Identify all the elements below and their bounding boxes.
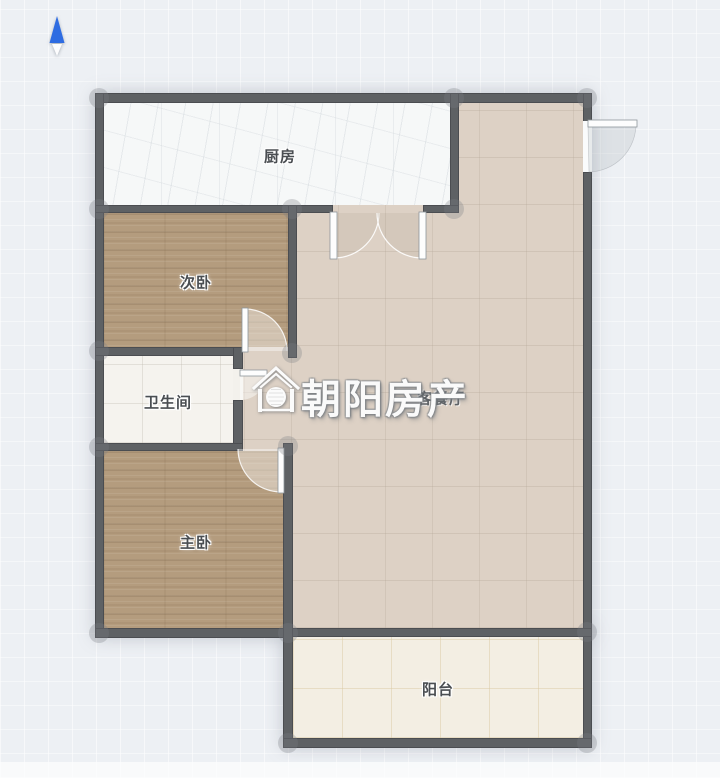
wall-node xyxy=(89,88,109,108)
bathroom-label: 卫生间 xyxy=(144,392,192,413)
wall-node xyxy=(282,343,302,363)
balcony-label: 阳台 xyxy=(422,679,454,700)
kitchen-label: 厨房 xyxy=(264,146,296,167)
secondary-bedroom-door-leaf xyxy=(242,308,248,352)
kitchen-door-swing-arc xyxy=(334,213,379,258)
kitchen-door-leaf xyxy=(419,212,426,259)
wall-node xyxy=(89,623,109,643)
kitchen-door-leaf xyxy=(330,212,337,259)
entry-door-swing-arc xyxy=(588,124,636,172)
brand-watermark-text: 朝阳房产 xyxy=(301,367,469,425)
wall-node xyxy=(282,199,302,219)
logo-roof-outer xyxy=(254,368,298,388)
entry-door-leaf xyxy=(588,120,637,127)
wall-node xyxy=(444,199,464,219)
wall-node xyxy=(577,622,597,642)
wall-node xyxy=(444,88,464,108)
house-sun-logo-icon xyxy=(250,361,302,415)
wall-node xyxy=(278,733,298,753)
wall-node xyxy=(278,436,298,456)
secondary-bedroom-label: 次卧 xyxy=(180,272,212,293)
master-bedroom-label: 主卧 xyxy=(180,532,212,553)
bottom-edge-strip xyxy=(0,762,720,778)
floorplan-canvas: 厨房 次卧 卫生间 主卧 客餐厅 阳台 朝阳房产 xyxy=(0,0,720,778)
wall-node xyxy=(89,341,109,361)
secondary-bedroom-door-swing-arc xyxy=(245,309,287,351)
wall-node xyxy=(577,733,597,753)
wall-node xyxy=(89,199,109,219)
wall-node xyxy=(278,623,298,643)
master-bedroom-door-leaf xyxy=(278,448,284,493)
kitchen-door-swing-arc xyxy=(377,213,422,258)
wall-node xyxy=(89,437,109,457)
wall-node xyxy=(577,88,597,108)
master-bedroom-door-swing-arc xyxy=(238,449,281,492)
